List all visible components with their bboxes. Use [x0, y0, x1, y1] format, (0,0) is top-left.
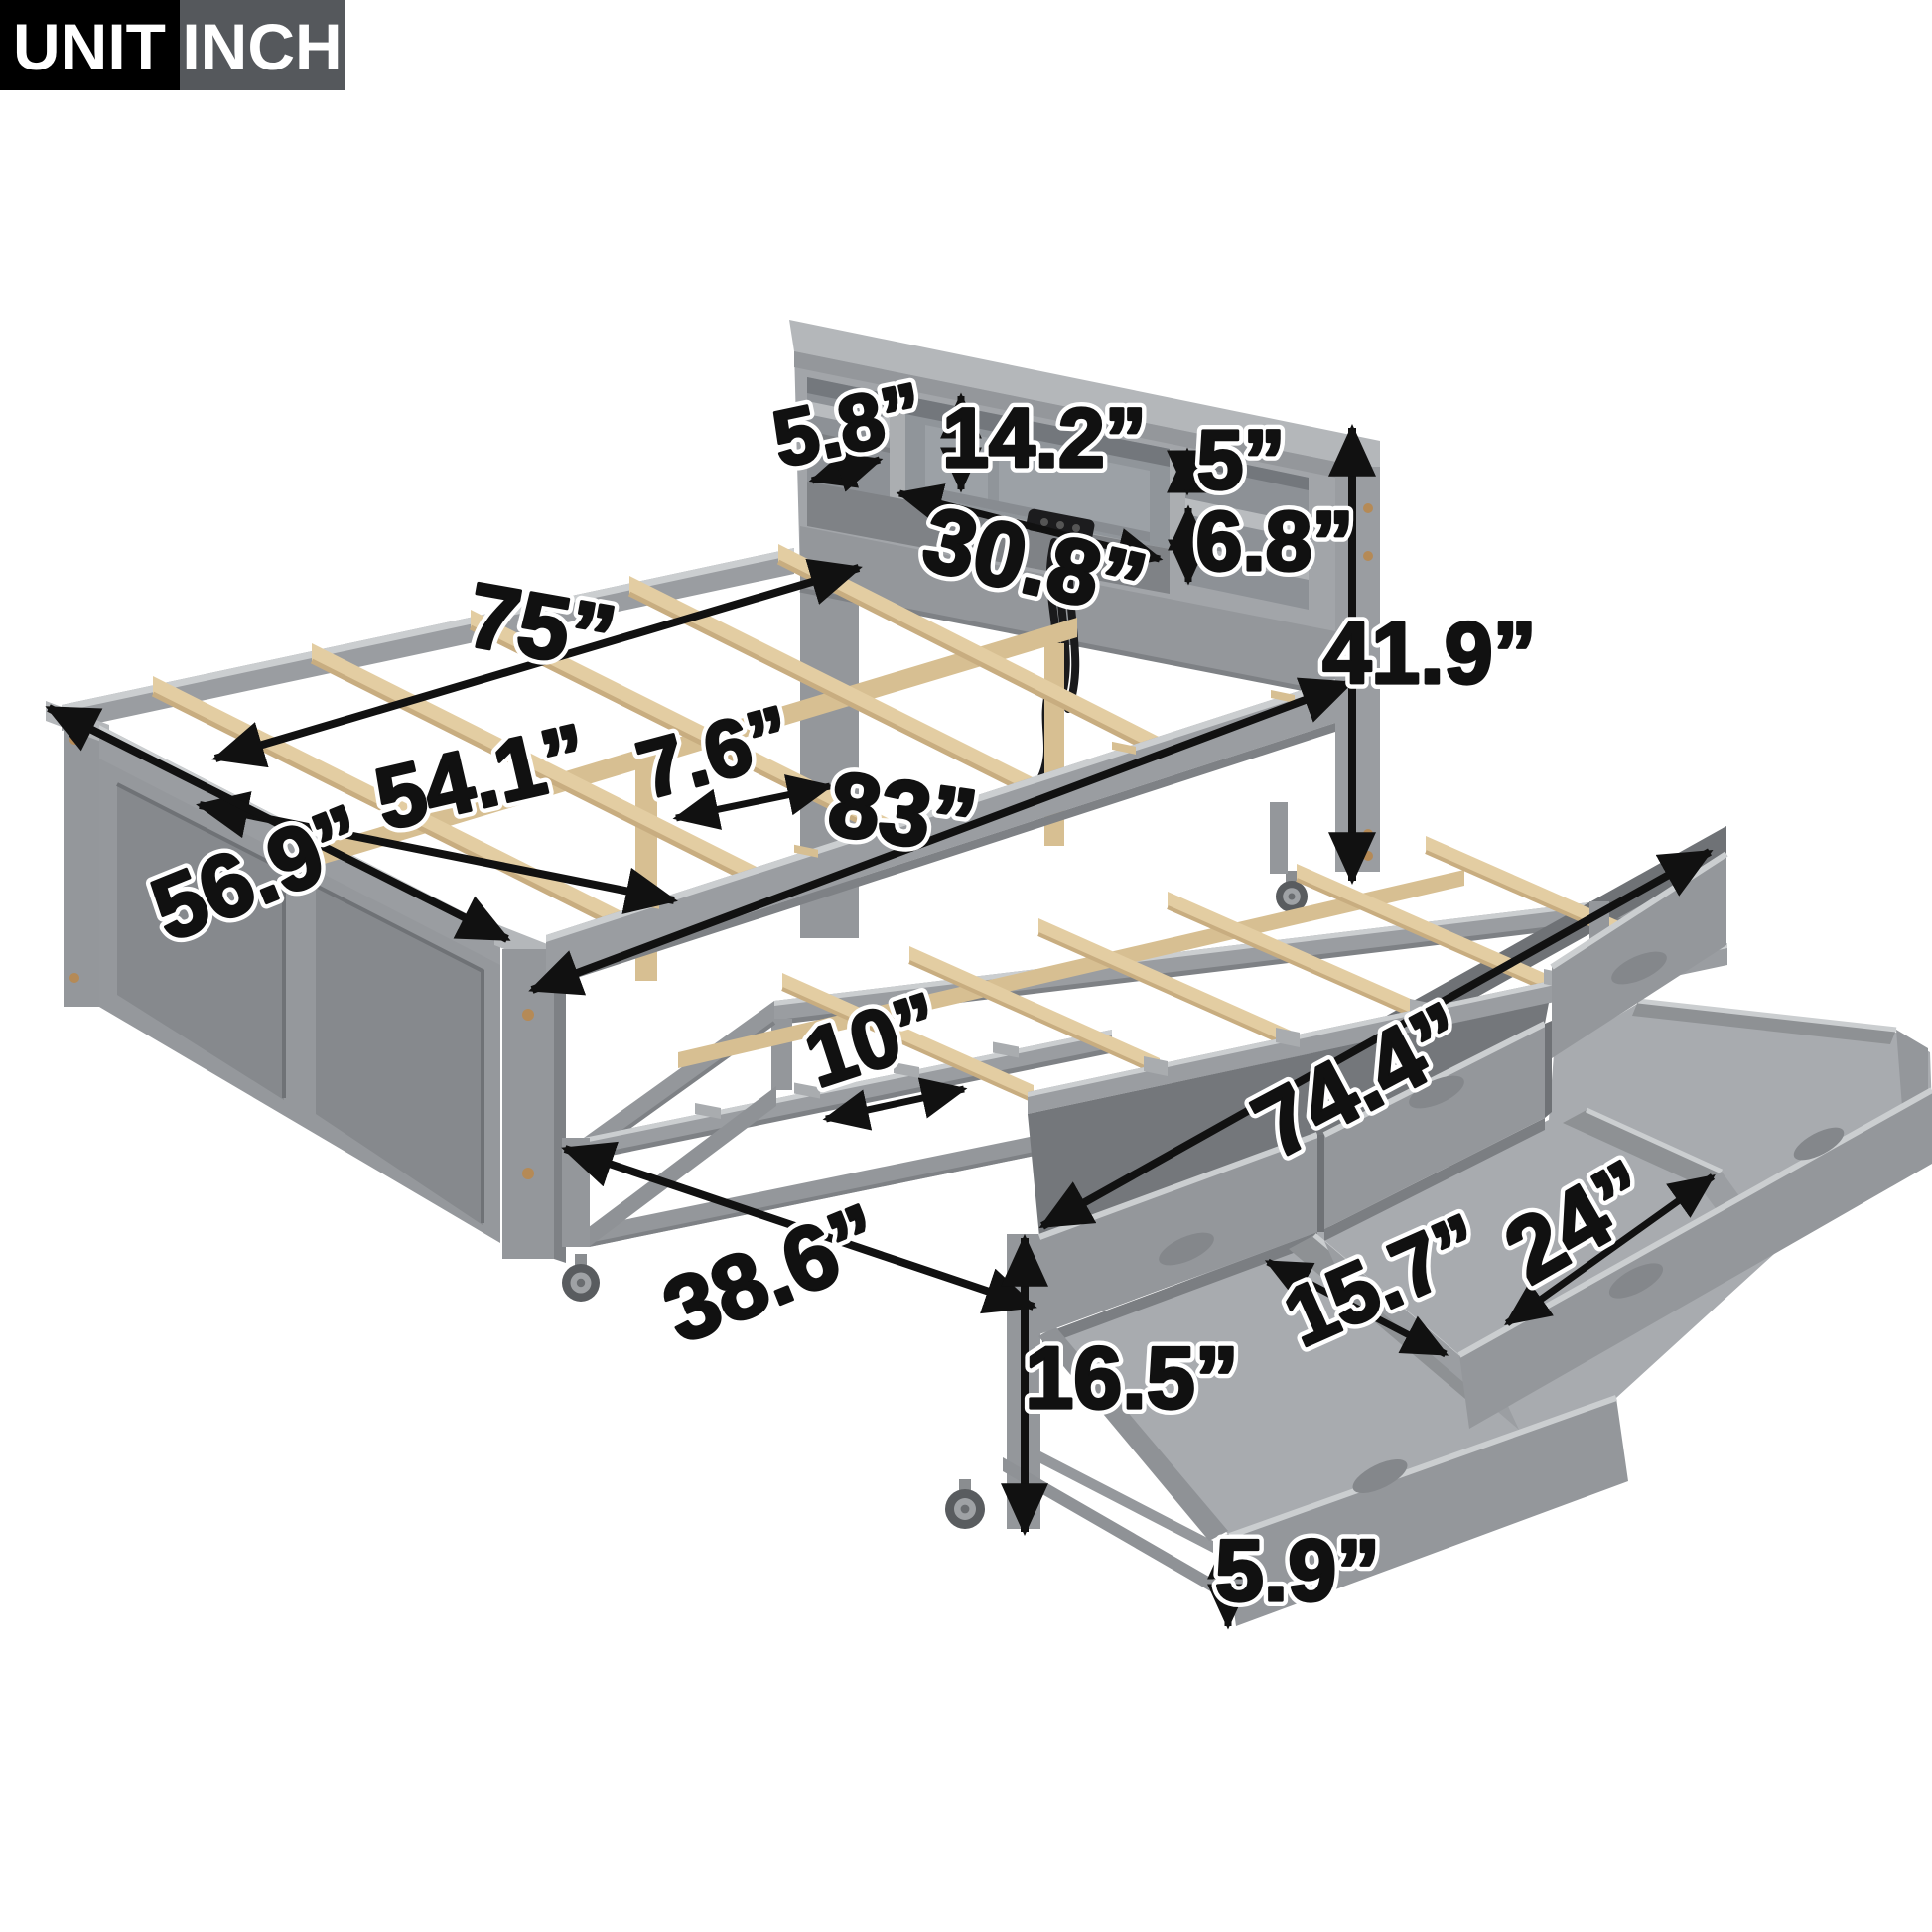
svg-text:5”: 5”	[1197, 413, 1286, 506]
svg-text:INCH: INCH	[182, 10, 342, 83]
svg-text:16.5”: 16.5”	[1025, 1328, 1238, 1427]
svg-text:83”: 83”	[823, 753, 983, 874]
svg-text:41.9”: 41.9”	[1322, 604, 1536, 702]
svg-text:6.8”: 6.8”	[1196, 494, 1354, 588]
svg-text:5.9”: 5.9”	[1215, 1521, 1380, 1619]
svg-text:14.2”: 14.2”	[942, 391, 1147, 484]
svg-text:UNIT: UNIT	[13, 10, 166, 83]
